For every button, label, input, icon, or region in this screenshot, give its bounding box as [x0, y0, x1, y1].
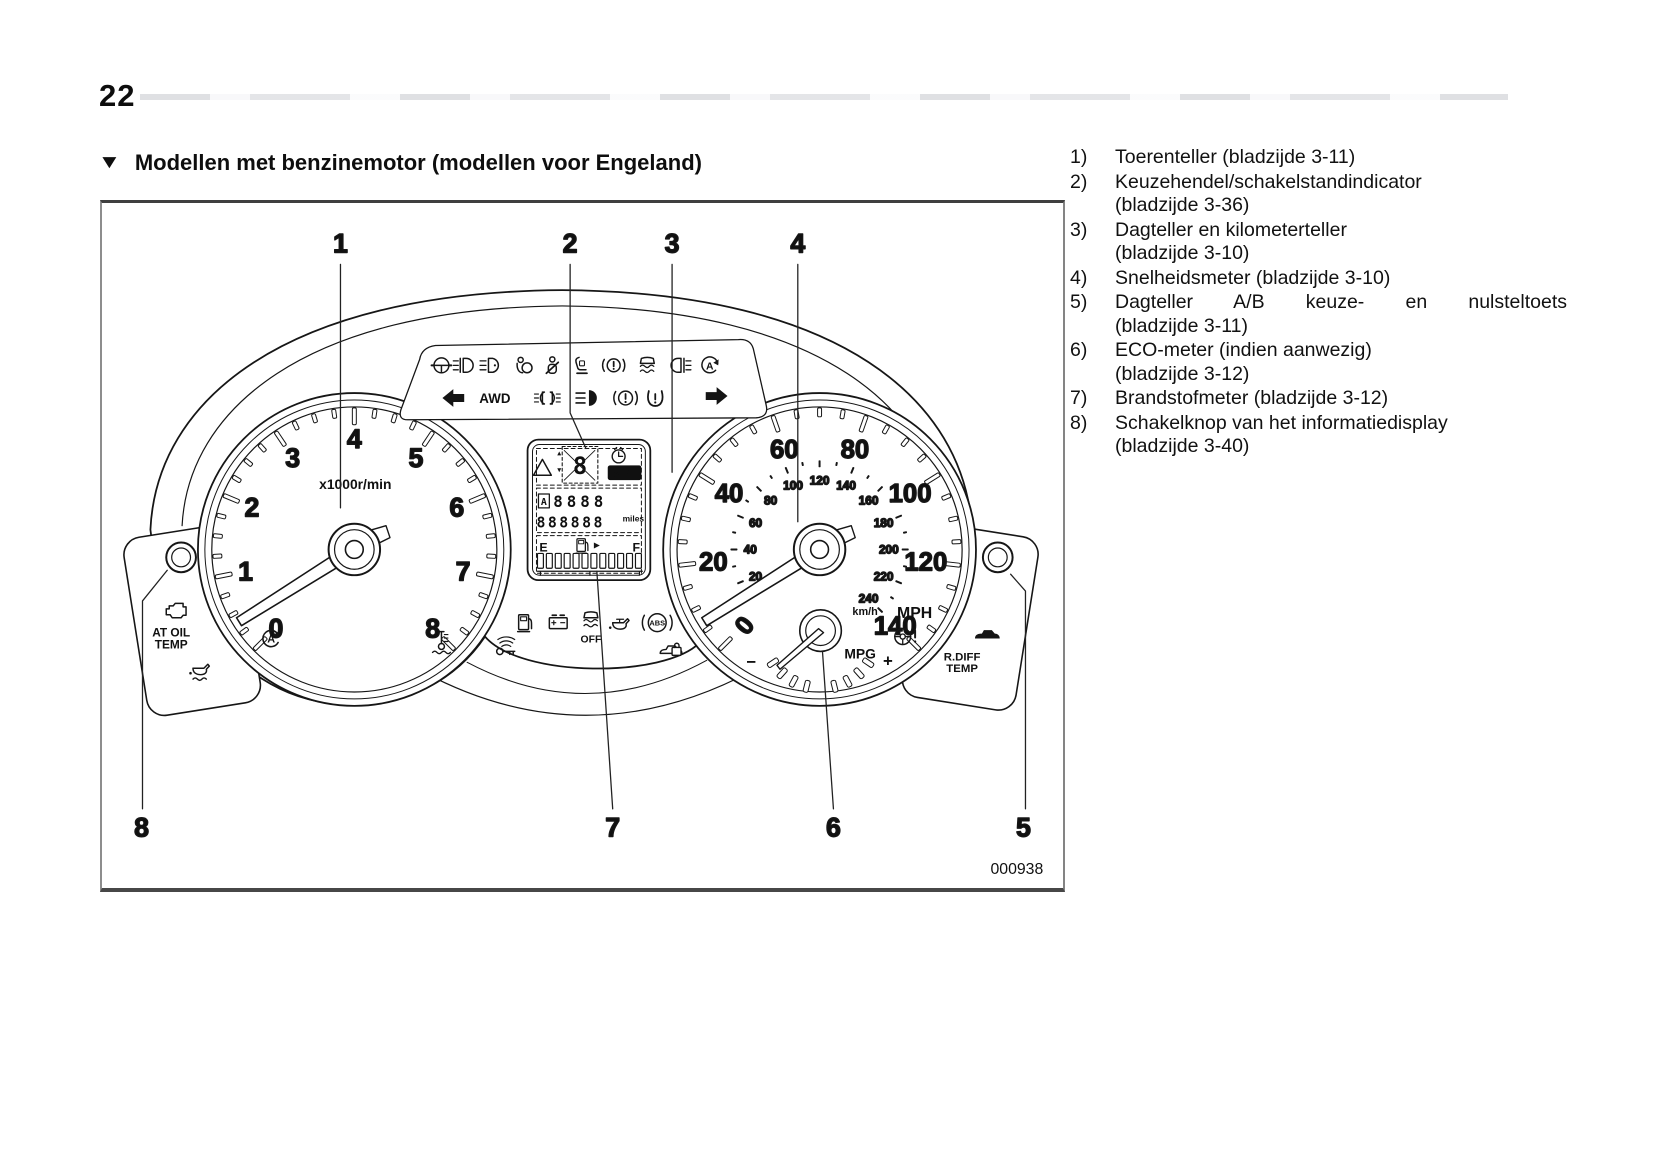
- legend-item: 5)Dagteller A/B keuze- en nulsteltoets(b…: [1070, 291, 1570, 338]
- legend-item-number: 7): [1070, 387, 1115, 411]
- legend-item-line: Keuzehendel/schakelstandindicator: [1115, 171, 1570, 195]
- trip-meter: A 8888: [538, 492, 607, 511]
- svg-text:ABS: ABS: [649, 618, 665, 627]
- legend-item-text: Schakelknop van het informatiedisplay(bl…: [1115, 412, 1570, 459]
- fuel-segment: [600, 553, 606, 568]
- legend-item-number: 5): [1070, 291, 1115, 338]
- legend-item: 1)Toerenteller (bladzijde 3-11): [1070, 146, 1570, 170]
- svg-text:F: F: [632, 540, 640, 554]
- legend-item-line: Dagteller A/B keuze- en nulsteltoets: [1115, 291, 1567, 315]
- callout-number-8: 8: [134, 813, 149, 843]
- page-number: 22: [99, 78, 135, 114]
- gauge-number: 20: [699, 549, 728, 577]
- gauge-number: 80: [841, 436, 870, 464]
- gauge-number: 7: [456, 557, 471, 587]
- fuel-segment: [564, 553, 570, 568]
- legend-item-line: Toerenteller (bladzijde 3-11): [1115, 146, 1570, 170]
- legend-item-line: Brandstofmeter (bladzijde 3-12): [1115, 387, 1570, 411]
- gauge-number: 200: [879, 543, 899, 557]
- info-display-knob: [166, 543, 196, 573]
- legend-item-line: (bladzijde 3-10): [1115, 242, 1570, 266]
- gauge-number: 80: [764, 494, 778, 508]
- set-badge: SET: [608, 465, 642, 480]
- trip-reset-knob: [983, 543, 1013, 573]
- section-title: Modellen met benzinemotor (modellen voor…: [135, 150, 702, 176]
- figure-code: 000938: [990, 861, 1043, 878]
- legend-item-line: (bladzijde 3-12): [1115, 363, 1570, 387]
- svg-text:SET: SET: [614, 468, 636, 480]
- legend-item-line: Schakelknop van het informatiedisplay: [1115, 412, 1570, 436]
- legend-item-number: 1): [1070, 146, 1115, 170]
- legend-item-number: 4): [1070, 267, 1115, 291]
- legend-item-line: (bladzijde 3-40): [1115, 435, 1570, 459]
- legend-item-text: Keuzehendel/schakelstandindicator(bladzi…: [1115, 171, 1570, 218]
- fuel-segment: [635, 553, 641, 568]
- svg-text:miles: miles: [623, 514, 645, 524]
- gauge-number: 120: [810, 473, 830, 487]
- gauge-number: 2: [244, 493, 259, 523]
- gauge-number: 5: [408, 443, 423, 473]
- gauge-number: 100: [889, 480, 932, 508]
- legend-item-text: Brandstofmeter (bladzijde 3-12): [1115, 387, 1570, 411]
- gauge-number: 40: [715, 480, 744, 508]
- info-display: 8 SET A 8888 888888: [528, 440, 651, 581]
- gauge-number: 1: [238, 557, 253, 587]
- figure-box: 012345678 x1000r/min A: [100, 200, 1065, 892]
- section-marker-icon: ▼: [98, 152, 122, 174]
- instrument-cluster-diagram: 012345678 x1000r/min A: [102, 203, 1063, 888]
- fuel-segment: [573, 553, 579, 568]
- svg-text:888888: 888888: [536, 515, 604, 532]
- legend-item: 4)Snelheidsmeter (bladzijde 3-10): [1070, 267, 1570, 291]
- callout-number-1: 1: [333, 228, 348, 258]
- fuel-segment: [537, 553, 543, 568]
- gauge-number: 60: [749, 516, 763, 530]
- legend-item-text: Toerenteller (bladzijde 3-11): [1115, 146, 1570, 170]
- gauge-number: 100: [783, 479, 803, 493]
- gauge-number: 60: [770, 436, 799, 464]
- fuel-segment: [627, 553, 633, 568]
- legend-item: 3)Dagteller en kilometerteller(bladzijde…: [1070, 219, 1570, 266]
- mph-unit-label: MPH: [897, 605, 932, 622]
- gauge-number: 140: [836, 479, 856, 493]
- svg-text:A: A: [267, 634, 275, 646]
- legend-item-line: ECO-meter (indien aanwezig): [1115, 339, 1570, 363]
- gauge-number: 4: [347, 424, 362, 454]
- fuel-segment: [609, 553, 615, 568]
- legend-item-line: (bladzijde 3-11): [1115, 315, 1570, 339]
- callout-number-4: 4: [790, 228, 805, 258]
- legend-item-number: 6): [1070, 339, 1115, 386]
- rdiff-temp-label-1: R.DIFF: [944, 651, 981, 663]
- vdc-off-label: OFF: [581, 635, 602, 646]
- gauge-number: 240: [859, 592, 879, 606]
- speedometer-dial: 020406080100120140 204060801001201401601…: [663, 393, 976, 706]
- awd-indicator-label: AWD: [479, 391, 511, 406]
- svg-text:A: A: [706, 361, 714, 372]
- tachometer-dial: 012345678 x1000r/min A: [198, 393, 511, 706]
- legend-item-line: (bladzijde 3-36): [1115, 194, 1570, 218]
- gauge-number: 120: [904, 549, 947, 577]
- legend-item-text: Snelheidsmeter (bladzijde 3-10): [1115, 267, 1570, 291]
- legend-item-number: 8): [1070, 412, 1115, 459]
- eco-meter-plus: +: [883, 651, 893, 670]
- gauge-number: 180: [874, 516, 894, 530]
- tachometer-unit-label: x1000r/min: [319, 476, 391, 492]
- rdiff-temp-label-2: TEMP: [946, 663, 978, 675]
- callout-number-6: 6: [826, 813, 841, 843]
- legend-item-text: Dagteller A/B keuze- en nulsteltoets(bla…: [1115, 291, 1570, 338]
- callout-number-3: 3: [665, 228, 680, 258]
- gauge-number: 3: [285, 443, 300, 473]
- fuel-segment: [582, 553, 588, 568]
- kmh-unit-label: km/h: [852, 606, 877, 618]
- legend-item: 6)ECO-meter (indien aanwezig)(bladzijde …: [1070, 339, 1570, 386]
- legend-item-line: Dagteller en kilometerteller: [1115, 219, 1570, 243]
- shroud-arc-outer: [424, 670, 754, 715]
- svg-text:8888: 8888: [553, 492, 607, 511]
- legend-item-text: Dagteller en kilometerteller(bladzijde 3…: [1115, 219, 1570, 266]
- fuel-segment: [618, 553, 624, 568]
- gauge-number: 220: [874, 569, 894, 583]
- legend-item: 7)Brandstofmeter (bladzijde 3-12): [1070, 387, 1570, 411]
- legend-item: 8)Schakelknop van het informatiedisplay(…: [1070, 412, 1570, 459]
- gauge-number: 40: [744, 543, 758, 557]
- fuel-segment: [555, 553, 561, 568]
- at-oil-temp-label-2: TEMP: [155, 637, 188, 651]
- gauge-number: 8: [425, 613, 440, 643]
- legend-item-number: 2): [1070, 171, 1115, 218]
- scan-smudge-line: [140, 94, 1508, 100]
- eco-meter-minus: −: [746, 652, 756, 671]
- svg-text:A: A: [541, 497, 547, 508]
- fuel-segment: [546, 553, 552, 568]
- legend-item: 2)Keuzehendel/schakelstandindicator(blad…: [1070, 171, 1570, 218]
- callout-number-2: 2: [563, 228, 578, 258]
- gauge-number: 6: [449, 493, 464, 523]
- section-heading: ▼ Modellen met benzinemotor (modellen vo…: [100, 150, 702, 176]
- indicator-panel: [400, 340, 767, 420]
- legend-item-text: ECO-meter (indien aanwezig)(bladzijde 3-…: [1115, 339, 1570, 386]
- fuel-segment: [591, 553, 597, 568]
- eco-meter-label: MPG: [844, 645, 876, 661]
- legend-item-number: 3): [1070, 219, 1115, 266]
- gauge-number: 160: [859, 494, 879, 508]
- callout-number-7: 7: [605, 813, 620, 843]
- legend: 1)Toerenteller (bladzijde 3-11)2)Keuzehe…: [1070, 146, 1570, 460]
- callout-number-5: 5: [1016, 813, 1031, 843]
- legend-item-line: Snelheidsmeter (bladzijde 3-10): [1115, 267, 1570, 291]
- svg-text:E: E: [539, 540, 547, 554]
